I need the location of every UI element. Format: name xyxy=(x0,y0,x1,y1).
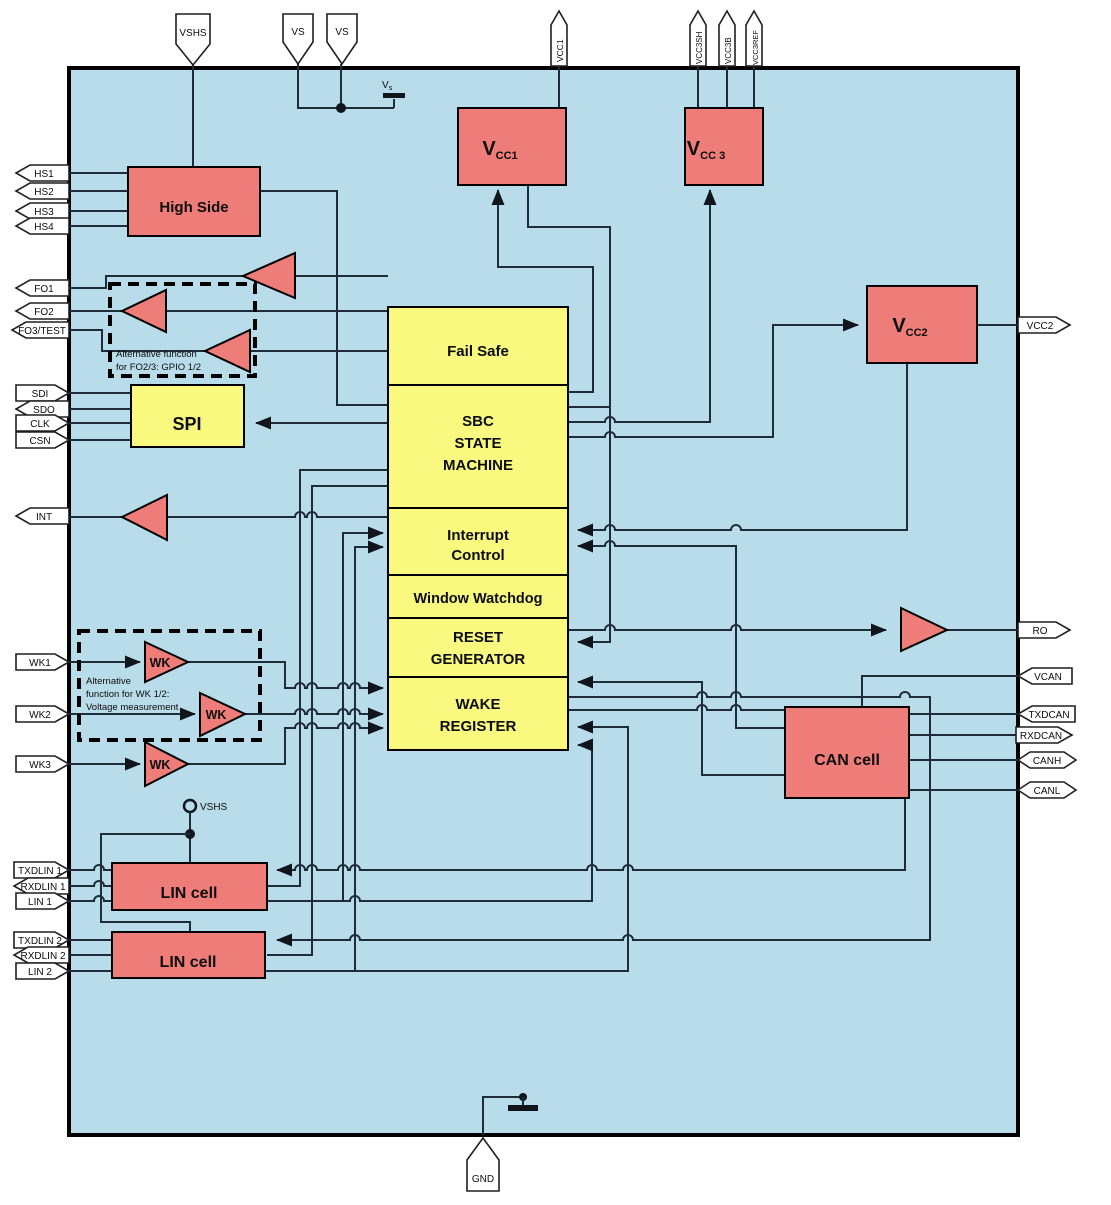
svg-text:RXDLIN 1: RXDLIN 1 xyxy=(20,882,65,893)
svg-text:HS4: HS4 xyxy=(34,222,54,233)
wk-note-3: Voltage measurement xyxy=(86,702,179,713)
wk-note-2: function for WK 1/2: xyxy=(86,689,169,700)
svg-text:VSHS: VSHS xyxy=(179,28,207,39)
pin-vs-1: VS xyxy=(283,14,313,64)
svg-text:LIN 1: LIN 1 xyxy=(28,897,52,908)
pin-vs1-shape xyxy=(283,14,313,64)
pin-wk3: WK3 xyxy=(16,756,69,772)
pin-hs3: HS3 xyxy=(16,203,69,219)
battery-symbol xyxy=(383,93,405,98)
watchdog-label: Window Watchdog xyxy=(414,591,543,607)
junction-dot xyxy=(336,103,346,113)
svg-text:HS2: HS2 xyxy=(34,187,54,198)
vcc2-block xyxy=(867,286,977,363)
pin-rxdlin2: RXDLIN 2 xyxy=(14,947,69,963)
svg-text:TXDLIN 1: TXDLIN 1 xyxy=(18,866,62,877)
pin-vshs-shape xyxy=(176,14,210,65)
sbc-label-1: SBC xyxy=(462,413,494,430)
pin-int: INT xyxy=(16,508,69,524)
svg-text:VS: VS xyxy=(291,27,305,38)
svg-text:VCC2: VCC2 xyxy=(1027,321,1054,332)
spi-label: SPI xyxy=(172,414,201,434)
svg-text:INT: INT xyxy=(36,512,52,523)
reset-label-1: RESET xyxy=(453,629,503,646)
vcc1-block xyxy=(458,108,566,185)
sbc-label-3: MACHINE xyxy=(443,457,513,474)
pin-txdlin2: TXDLIN 2 xyxy=(14,932,69,948)
wake-label-1: WAKE xyxy=(456,696,501,713)
pin-vcc3sh: VCC3SH xyxy=(690,11,706,66)
svg-text:VCC1: VCC1 xyxy=(555,39,565,62)
svg-text:FO3/TEST: FO3/TEST xyxy=(18,326,66,337)
can-cell-label: CAN cell xyxy=(814,752,880,769)
pin-lin2: LIN 2 xyxy=(16,963,69,979)
pin-wk1: WK1 xyxy=(16,654,69,670)
pin-gnd: GND xyxy=(467,1138,499,1191)
pin-rxdlin1: RXDLIN 1 xyxy=(14,878,69,894)
svg-text:FO2: FO2 xyxy=(34,307,54,318)
svg-text:LIN 2: LIN 2 xyxy=(28,967,52,978)
ground-symbol xyxy=(508,1105,538,1111)
interrupt-label-1: Interrupt xyxy=(447,527,509,544)
wk2-label: WK xyxy=(206,708,227,722)
reset-label-2: GENERATOR xyxy=(431,651,526,668)
pin-txdcan: TXDCAN xyxy=(1018,706,1075,722)
interrupt-label-2: Control xyxy=(451,547,504,564)
pin-fo2: FO2 xyxy=(16,303,69,319)
svg-text:TXDLIN 2: TXDLIN 2 xyxy=(18,936,62,947)
pin-vcc2: VCC2 xyxy=(1018,317,1070,333)
svg-text:WK2: WK2 xyxy=(29,710,51,721)
wk-note-1: Alternative xyxy=(86,676,131,687)
svg-text:VCAN: VCAN xyxy=(1034,672,1062,683)
svg-text:WK1: WK1 xyxy=(29,658,51,669)
sbc-block-diagram: High Side VCC1 VCC 3 VCC2 SPI Fail Safe … xyxy=(0,0,1111,1200)
svg-text:VCC3SH: VCC3SH xyxy=(695,31,704,64)
fo-note-1: Alternative function xyxy=(116,349,197,360)
pin-vcc1: VCC1 xyxy=(551,11,567,66)
pin-ro: RO xyxy=(1018,622,1070,638)
svg-text:CSN: CSN xyxy=(29,436,50,447)
fo-note-2: for FO2/3: GPIO 1/2 xyxy=(116,362,201,373)
pin-fo1: FO1 xyxy=(16,280,69,296)
pin-txdlin1: TXDLIN 1 xyxy=(14,862,69,878)
svg-text:CLK: CLK xyxy=(30,419,50,430)
svg-text:WK3: WK3 xyxy=(29,760,51,771)
diagram-svg: High Side VCC1 VCC 3 VCC2 SPI Fail Safe … xyxy=(0,0,1111,1200)
pin-lin1: LIN 1 xyxy=(16,893,69,909)
pin-vcan: VCAN xyxy=(1018,668,1072,684)
wk3-label: WK xyxy=(150,758,171,772)
svg-text:FO1: FO1 xyxy=(34,284,54,295)
lin-cell-1-label: LIN cell xyxy=(161,885,218,902)
pin-wk2: WK2 xyxy=(16,706,69,722)
vshs-node-label: VSHS xyxy=(200,802,228,813)
svg-text:VCC3REF: VCC3REF xyxy=(751,30,760,65)
pin-fo3-test: FO3/TEST xyxy=(12,322,69,338)
pin-vshs: VSHS xyxy=(176,14,210,65)
svg-text:SDI: SDI xyxy=(32,389,49,400)
pin-canl: CANL xyxy=(1018,782,1076,798)
pin-hs4: HS4 xyxy=(16,218,69,234)
wake-label-2: REGISTER xyxy=(440,718,517,735)
svg-text:HS3: HS3 xyxy=(34,207,54,218)
svg-text:RO: RO xyxy=(1033,626,1048,637)
pin-hs2: HS2 xyxy=(16,183,69,199)
vshs-node-circle xyxy=(184,800,196,812)
pin-rxdcan: RXDCAN xyxy=(1016,727,1072,743)
pin-hs1: HS1 xyxy=(16,165,69,181)
svg-text:HS1: HS1 xyxy=(34,169,54,180)
svg-text:VS: VS xyxy=(335,27,349,38)
svg-text:CANL: CANL xyxy=(1034,786,1061,797)
pin-vcc3b: VCC3B xyxy=(719,11,735,66)
pin-vcc3ref: VCC3REF xyxy=(746,11,762,66)
wk1-label: WK xyxy=(150,656,171,670)
pin-vs-2: VS xyxy=(327,14,357,64)
lin-cell-2-label: LIN cell xyxy=(160,954,217,971)
pin-vs2-shape xyxy=(327,14,357,64)
svg-text:VCC3B: VCC3B xyxy=(724,37,733,64)
sbc-label-2: STATE xyxy=(455,435,502,452)
svg-text:GND: GND xyxy=(472,1174,494,1185)
fail-safe-label: Fail Safe xyxy=(447,343,509,360)
pin-csn: CSN xyxy=(16,432,69,448)
svg-text:CANH: CANH xyxy=(1033,756,1061,767)
svg-text:RXDCAN: RXDCAN xyxy=(1020,731,1062,742)
svg-text:TXDCAN: TXDCAN xyxy=(1028,710,1069,721)
svg-text:RXDLIN 2: RXDLIN 2 xyxy=(20,951,65,962)
pin-sdi: SDI xyxy=(16,385,69,401)
pin-canh: CANH xyxy=(1018,752,1076,768)
high-side-label: High Side xyxy=(159,199,228,216)
